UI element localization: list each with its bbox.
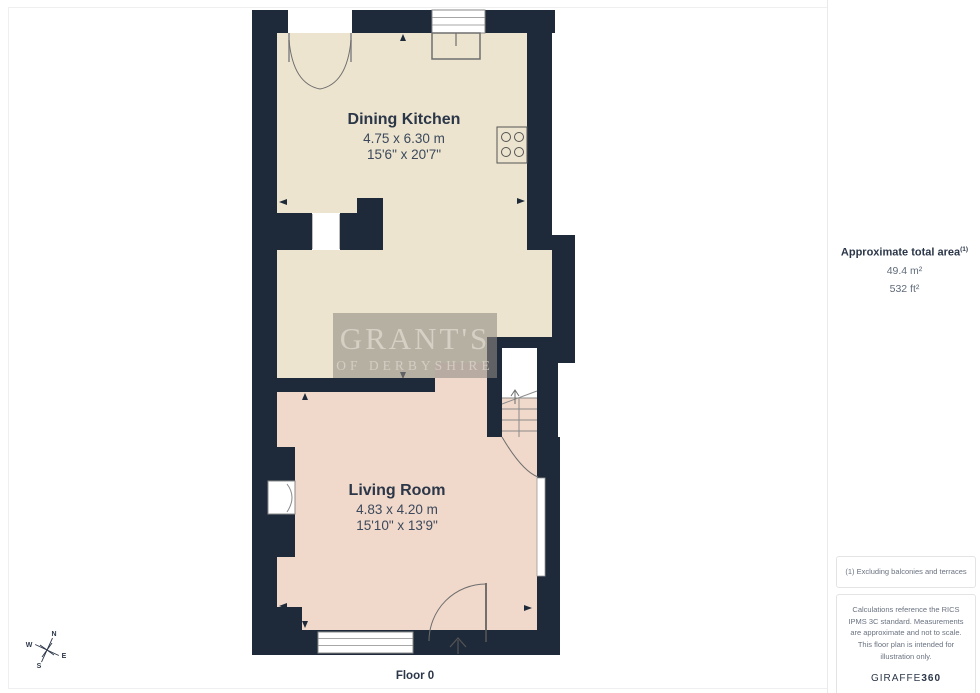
compass-e: E — [62, 653, 67, 660]
kitchen-dims-ft: 15'6" x 20'7" — [367, 147, 441, 162]
living-room-dims-m: 4.83 x 4.20 m — [356, 502, 438, 517]
footnote-exclusions: (1) Excluding balconies and terraces — [836, 556, 976, 588]
kitchen-window — [432, 10, 485, 33]
interior-doorway — [313, 214, 340, 249]
compass-w: W — [26, 642, 33, 649]
watermark-line2: OF DERBYSHIRE — [336, 358, 493, 373]
total-area-ft2: 532 ft² — [828, 283, 980, 295]
compass-s: S — [37, 663, 42, 670]
info-sidebar: Approximate total area(1) 49.4 m² 532 ft… — [827, 0, 980, 693]
total-area-title: Approximate total area(1) — [828, 246, 980, 259]
kitchen-dims-m: 4.75 x 6.30 m — [363, 131, 445, 146]
total-area-m2: 49.4 m² — [828, 265, 980, 277]
total-area-block: Approximate total area(1) 49.4 m² 532 ft… — [828, 246, 980, 295]
giraffe360-logo-regular: GIRAFFE — [871, 673, 921, 684]
giraffe360-logo: GIRAFFE360 — [844, 671, 968, 687]
watermark-line1: GRANT'S — [340, 321, 491, 356]
compass-n: N — [51, 631, 56, 638]
fireplace — [268, 481, 295, 514]
side-window — [537, 478, 545, 576]
compass-icon — [35, 638, 59, 662]
footnote-disclaimer-box: Calculations reference the RICS IPMS 3C … — [836, 594, 976, 693]
total-area-title-text: Approximate total area — [841, 247, 960, 259]
footnote-disclaimer: Calculations reference the RICS IPMS 3C … — [844, 604, 968, 662]
living-room-dims-ft: 15'10" x 13'9" — [356, 518, 438, 533]
floor-label: Floor 0 — [396, 670, 434, 682]
living-room-name: Living Room — [349, 482, 446, 499]
floor-plan-page: GRANT'S OF DERBYSHIRE Dining Kitchen 4.7… — [0, 0, 980, 693]
watermark: GRANT'S OF DERBYSHIRE — [333, 313, 497, 378]
giraffe360-logo-bold: 360 — [921, 673, 941, 684]
kitchen-name: Dining Kitchen — [348, 111, 461, 128]
total-area-footnote-ref: (1) — [960, 246, 968, 253]
living-room-window — [318, 632, 413, 653]
